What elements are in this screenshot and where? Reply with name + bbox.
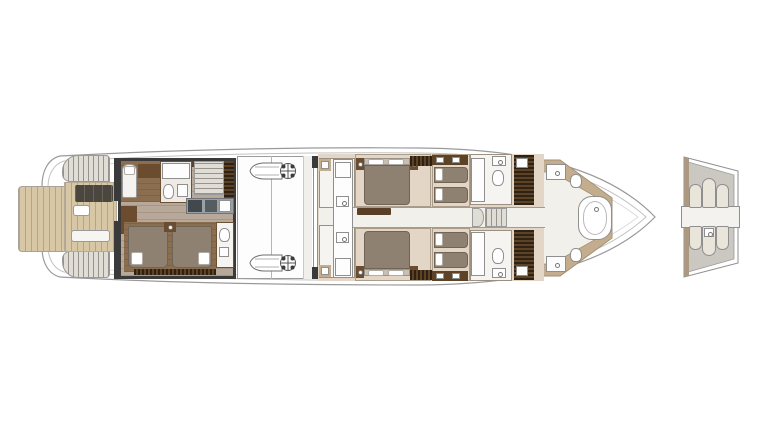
corner-fixture [321, 161, 329, 169]
transom-beam [681, 206, 740, 228]
stairs-landing-curve [472, 208, 484, 227]
toilet-icon [492, 170, 504, 186]
closet-box [516, 158, 528, 168]
roller-cylinder [716, 226, 729, 250]
vip-vanity [546, 164, 566, 180]
closet-box [452, 273, 460, 279]
closet-box [436, 273, 444, 279]
closet-box [516, 266, 528, 276]
bed-icon [364, 165, 410, 205]
roller-cylinder [689, 226, 702, 250]
sink-icon [336, 196, 349, 207]
yacht-floor-plan [0, 0, 768, 432]
sink-icon [492, 156, 506, 166]
wardrobe [410, 156, 432, 166]
shower-icon [471, 232, 485, 276]
toilet-icon [570, 174, 582, 188]
nightstand [356, 266, 364, 278]
toilet-icon [570, 248, 582, 262]
toilet-icon [492, 248, 504, 264]
bed-pillow [388, 270, 404, 276]
roller-cylinder [716, 184, 729, 208]
bed-pillow [435, 168, 443, 181]
engine-icon [250, 163, 296, 179]
center-ram-upper [702, 178, 716, 208]
nightstand [356, 158, 364, 170]
sink-icon [492, 268, 506, 278]
shower-icon [471, 158, 485, 202]
bathtub-inner [583, 201, 607, 235]
engine-icon [250, 255, 296, 271]
vip-vanity [546, 256, 566, 272]
corridor-stairs-icon [485, 208, 507, 227]
bathroom-closet [335, 258, 351, 276]
bed-pillow [368, 270, 384, 276]
latch-box [704, 228, 714, 237]
roller-cylinder [689, 184, 702, 208]
bed-pillow [435, 253, 443, 266]
sink-icon [336, 232, 349, 243]
bed-pillow [435, 233, 443, 246]
closet-box [452, 157, 460, 163]
bed-pillow [435, 188, 443, 201]
bed-icon [364, 231, 410, 269]
corner-fixture [321, 267, 329, 275]
closet-box [436, 157, 444, 163]
wardrobe [410, 270, 432, 280]
corridor-sideboard [357, 208, 391, 215]
bathroom-closet [335, 162, 351, 178]
